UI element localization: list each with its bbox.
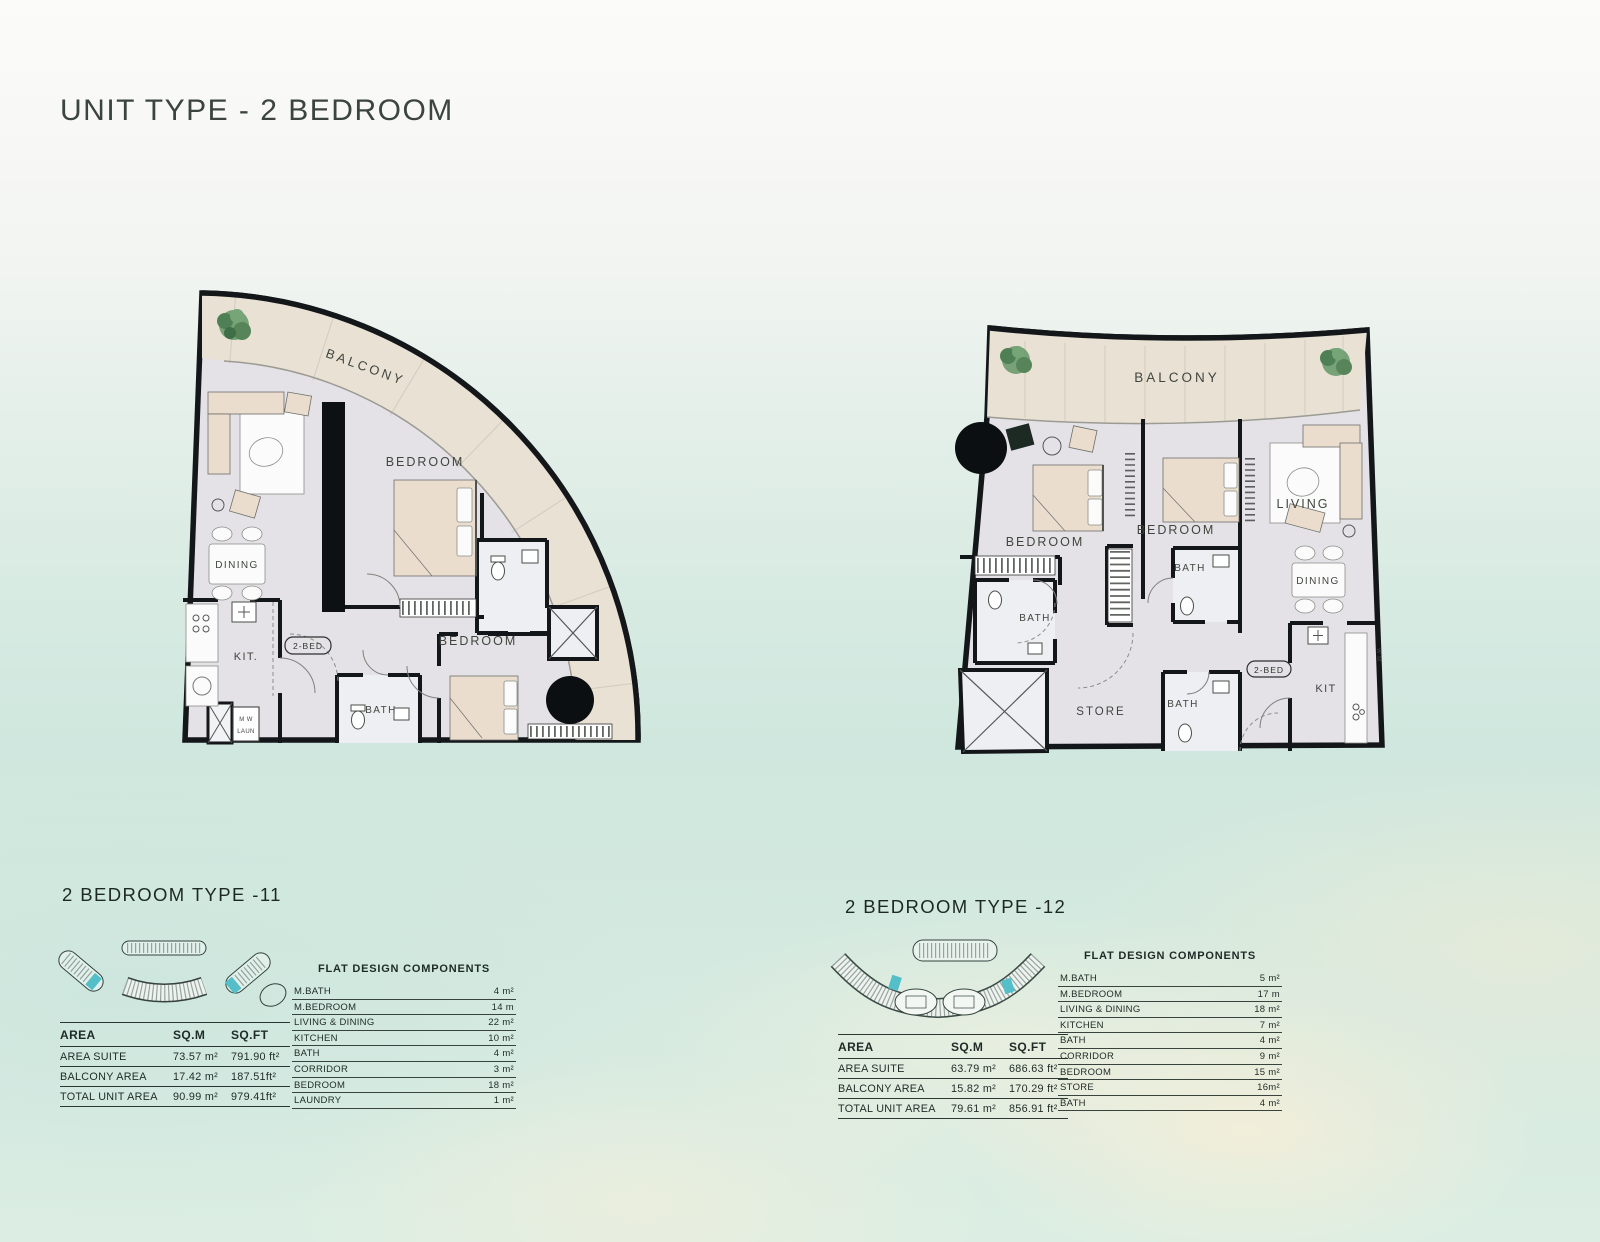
core-outline [895, 989, 937, 1015]
col-sqm: SQ.M [951, 1040, 1009, 1054]
room-label-balcony: BALCONY [1134, 370, 1220, 385]
room-label-bedroom-mid: BEDROOM [1137, 523, 1216, 537]
table-row: STORE16m² [1058, 1080, 1282, 1096]
table-row: M.BATH4 m² [292, 984, 516, 1000]
table-row: AREA SUITE 73.57 m² 791.90 ft² [60, 1047, 290, 1067]
table-row: M.BEDROOM17 m [1058, 987, 1282, 1003]
room-label-bath: BATH [365, 705, 397, 716]
bed-master [1033, 465, 1103, 531]
room-label-store: STORE [1076, 706, 1125, 718]
column-marker [546, 676, 594, 724]
components-title: FLAT DESIGN COMPONENTS [1058, 950, 1282, 962]
wardrobe-bar [322, 402, 345, 612]
svg-text:2-BED: 2-BED [1254, 665, 1284, 675]
floor-plan-left: M W LAUN [178, 268, 650, 750]
laundry-label: LAUN [237, 729, 255, 735]
room-label-bedroom-bottom: BEDROOM [439, 634, 518, 648]
room-label-bedroom-left: BEDROOM [1006, 535, 1085, 549]
page-title: UNIT TYPE - 2 BEDROOM [60, 94, 454, 128]
components-title: FLAT DESIGN COMPONENTS [292, 963, 516, 975]
table-row: CORRIDOR9 m² [1058, 1049, 1282, 1065]
building-outline [222, 949, 274, 997]
washer-label: W M [1375, 648, 1381, 662]
floor-plan-right: W M BALCONY BEDROOM BEDROOM LIVING [925, 303, 1397, 773]
laundry-closet: M W LAUN [208, 703, 259, 743]
table-row: BALCONY AREA 17.42 m² 187.51ft² [60, 1067, 290, 1087]
table-row: BEDROOM15 m² [1058, 1065, 1282, 1081]
table-row: KITCHEN7 m² [1058, 1018, 1282, 1034]
area-table-left: AREA SQ.M SQ.FT AREA SUITE 73.57 m² 791.… [60, 1022, 290, 1107]
unit-heading-left: 2 BEDROOM TYPE -11 [62, 884, 282, 906]
unit-heading-right: 2 BEDROOM TYPE -12 [845, 896, 1066, 918]
table-row: M.BEDROOM14 m [292, 1000, 516, 1016]
washer-label: M W [239, 717, 253, 723]
room-label-dining: DINING [1296, 576, 1339, 587]
room-label-kitchen: KIT. [234, 651, 259, 663]
col-area: AREA [60, 1028, 173, 1042]
room-label-bedroom-top: BEDROOM [386, 455, 465, 469]
table-row: BATH4 m² [1058, 1096, 1282, 1112]
column-marker [955, 422, 1007, 474]
table-row: AREA SUITE 63.79 m² 686.63 ft² [838, 1059, 1068, 1079]
col-area: AREA [838, 1040, 951, 1054]
area-table-right: AREA SQ.M SQ.FT AREA SUITE 63.79 m² 686.… [838, 1034, 1068, 1119]
room-label-bath-left: BATH [1019, 613, 1051, 624]
brochure-page: UNIT TYPE - 2 BEDROOM [0, 0, 1600, 1242]
room-label-bath-mid: BATH [1174, 563, 1206, 574]
room-label-dining: DINING [215, 560, 258, 571]
room-label-living: LIVING [1277, 497, 1330, 511]
table-row: BEDROOM18 m² [292, 1078, 516, 1094]
col-sqm: SQ.M [173, 1028, 231, 1042]
plot-outline [256, 979, 290, 1010]
room-label-bath-bottom: BATH [1167, 699, 1199, 710]
table-row: LIVING & DINING18 m² [1058, 1002, 1282, 1018]
building-outline [55, 947, 107, 995]
svg-text:2-BED: 2-BED [293, 641, 323, 651]
bed-second [450, 676, 518, 740]
bed-master [394, 480, 476, 576]
table-row: TOTAL UNIT AREA 90.99 m² 979.41ft² [60, 1087, 290, 1107]
table-row: TOTAL UNIT AREA 79.61 m² 856.91 ft² [838, 1099, 1068, 1119]
keyplan-left [52, 922, 302, 1027]
keyplan-right [818, 922, 1058, 1027]
table-row: BATH4 m² [292, 1046, 516, 1062]
components-table-left: FLAT DESIGN COMPONENTS M.BATH4 m² M.BEDR… [292, 963, 516, 1109]
table-row: KITCHEN10 m² [292, 1031, 516, 1047]
table-row: CORRIDOR3 m² [292, 1062, 516, 1078]
table-row: LAUNDRY1 m² [292, 1093, 516, 1109]
bed-second [1163, 458, 1239, 522]
table-row: BATH4 m² [1058, 1033, 1282, 1049]
area-table-header: AREA SQ.M SQ.FT [838, 1034, 1068, 1059]
room-label-kitchen: KIT [1315, 683, 1336, 695]
table-row: M.BATH5 m² [1058, 971, 1282, 987]
unit-highlight [888, 975, 902, 991]
components-table-right: FLAT DESIGN COMPONENTS M.BATH5 m² M.BEDR… [1058, 950, 1282, 1111]
area-table-header: AREA SQ.M SQ.FT [60, 1022, 290, 1047]
col-sqft: SQ.FT [231, 1028, 290, 1042]
core-outline [943, 989, 985, 1015]
table-row: BALCONY AREA 15.82 m² 170.29 ft² [838, 1079, 1068, 1099]
table-row: LIVING & DINING22 m² [292, 1015, 516, 1031]
